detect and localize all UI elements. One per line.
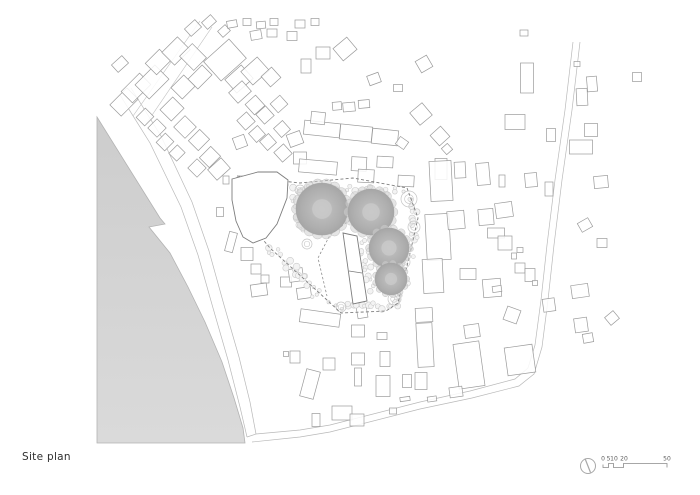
building [296, 287, 311, 300]
building [217, 208, 224, 217]
building [512, 253, 517, 259]
shrub [411, 255, 415, 259]
building [352, 353, 365, 365]
building [571, 283, 590, 298]
shrub [283, 265, 289, 271]
building [286, 130, 304, 147]
building [290, 351, 300, 363]
site-plan-page: 05102050 Site plan [0, 0, 700, 495]
building [301, 59, 311, 73]
shrub [287, 257, 294, 264]
building [358, 169, 375, 183]
north-arrow-icon [581, 459, 596, 474]
building [492, 285, 502, 292]
building [274, 144, 292, 162]
building [225, 231, 238, 252]
scale-tick-label: 50 [663, 456, 671, 463]
building [148, 119, 166, 137]
existing-building [232, 172, 288, 243]
building [574, 62, 580, 67]
canopy-core [362, 203, 379, 220]
building [312, 414, 320, 427]
building [243, 19, 251, 26]
building [332, 406, 352, 420]
building [400, 396, 410, 401]
building [415, 373, 427, 390]
building [545, 182, 553, 196]
shrub [276, 247, 280, 251]
building [358, 100, 370, 109]
building [505, 115, 525, 130]
building [597, 239, 607, 248]
building [429, 160, 453, 201]
building [403, 375, 412, 388]
building [605, 311, 620, 326]
building [585, 124, 598, 137]
site-plan-drawing: 05102050 [0, 0, 700, 495]
canopy-core [381, 240, 396, 255]
building [594, 175, 609, 188]
shrub [293, 263, 300, 270]
building [270, 95, 288, 113]
shrub [270, 252, 274, 256]
building [237, 112, 255, 130]
building [310, 111, 325, 124]
building [570, 140, 593, 154]
building [174, 116, 197, 139]
building [333, 37, 357, 61]
building [380, 352, 390, 367]
building [256, 21, 266, 29]
building [422, 258, 444, 293]
shrub [415, 235, 419, 239]
shrub [368, 264, 374, 270]
building [267, 29, 277, 37]
building [295, 20, 305, 28]
building [270, 19, 278, 26]
building [576, 88, 588, 106]
shrub [363, 259, 368, 264]
building [415, 55, 433, 73]
building [377, 156, 394, 168]
building [377, 333, 387, 340]
scale-tick-label: 0 [601, 456, 605, 463]
building [441, 143, 452, 154]
building [499, 175, 505, 187]
shrub [315, 293, 318, 296]
building [504, 344, 536, 376]
building [299, 309, 340, 327]
shrub [304, 283, 310, 289]
building [371, 128, 398, 146]
building [454, 162, 466, 179]
building [524, 173, 537, 188]
building [415, 308, 433, 323]
building [582, 333, 593, 344]
building [367, 72, 382, 86]
canopy-core [312, 199, 332, 219]
building [498, 236, 512, 250]
scale-bar: 05102050 [601, 456, 671, 468]
building [111, 56, 128, 73]
building [332, 102, 342, 111]
building [343, 102, 356, 112]
building [427, 396, 437, 402]
building [410, 103, 433, 126]
building [352, 325, 365, 337]
building [339, 124, 372, 142]
building [574, 317, 589, 333]
building [521, 63, 534, 93]
building [311, 19, 319, 26]
building [476, 162, 491, 185]
building [299, 159, 338, 175]
building [300, 369, 321, 400]
tree-inner [304, 241, 310, 247]
building [250, 30, 262, 41]
building [188, 129, 209, 150]
shrub [278, 252, 283, 257]
building [542, 298, 556, 313]
building [495, 201, 514, 218]
building [223, 176, 229, 184]
building [350, 414, 364, 426]
building [525, 269, 535, 282]
building [547, 129, 556, 142]
building [517, 248, 523, 253]
building [160, 97, 184, 121]
building [376, 376, 390, 397]
shrub [367, 288, 373, 294]
building [515, 263, 525, 273]
building [478, 208, 494, 225]
building [398, 175, 415, 187]
building [202, 15, 217, 30]
building [355, 368, 362, 386]
building [251, 264, 261, 274]
shrub [392, 189, 397, 194]
canopy-core [385, 273, 397, 285]
building [586, 76, 597, 92]
building [633, 73, 642, 82]
building [577, 218, 592, 233]
building [460, 269, 476, 280]
building [284, 352, 289, 357]
building [250, 283, 268, 297]
building [316, 47, 330, 59]
building [261, 275, 269, 283]
building [464, 324, 481, 339]
building [287, 32, 297, 41]
building [390, 408, 397, 414]
building [533, 281, 538, 286]
building [430, 126, 450, 146]
shrub [310, 295, 314, 299]
building [416, 323, 434, 368]
building [520, 30, 528, 36]
scale-tick-label: 10 [610, 456, 618, 463]
building [241, 248, 253, 261]
circular-building-1 [292, 179, 353, 239]
building [136, 108, 154, 126]
shrub [362, 238, 366, 242]
scale-tick-label: 20 [620, 456, 628, 463]
building [226, 20, 237, 29]
building [447, 210, 466, 229]
building [453, 341, 485, 389]
shrub [348, 184, 352, 188]
building [394, 85, 403, 92]
building [232, 134, 247, 149]
building [323, 358, 335, 370]
building [503, 306, 521, 324]
tree [302, 239, 312, 249]
shrub [266, 245, 273, 252]
building [449, 386, 463, 398]
drawing-title: Site plan [22, 451, 71, 463]
shrub [363, 268, 367, 272]
shrub [371, 301, 376, 306]
